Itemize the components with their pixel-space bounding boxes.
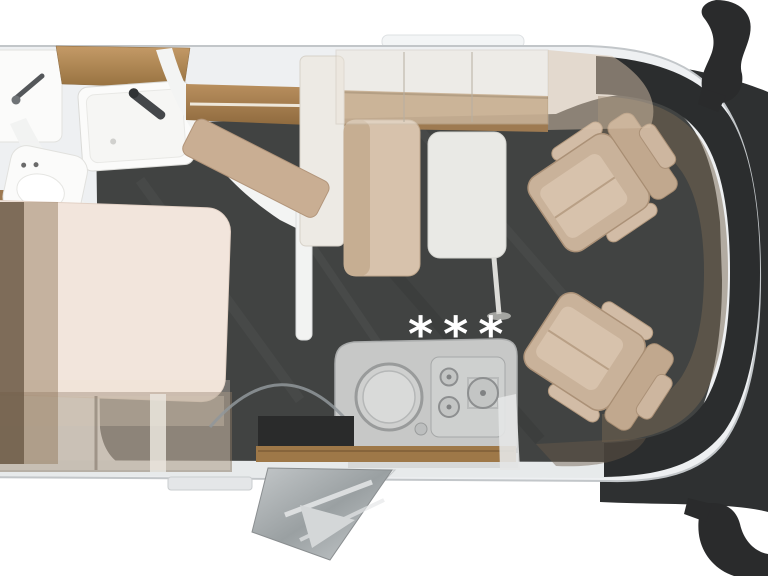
wardrobe-side-light	[24, 202, 58, 464]
overhead-lockers	[336, 50, 548, 124]
wardrobe-side-dark	[0, 202, 24, 464]
table	[428, 132, 506, 258]
kitchen-faucet-base	[415, 423, 427, 435]
washbasin-drain	[12, 96, 21, 105]
wood-threshold	[256, 446, 516, 462]
bench-seat-back	[344, 120, 370, 276]
floorplan-render: ***	[0, 0, 768, 576]
side-skirt-step	[168, 477, 252, 490]
hob-burner-large-center	[480, 390, 486, 396]
hob-burner-small-2-center	[447, 405, 452, 410]
hob-burner-small-1-center	[447, 375, 452, 380]
floorplan-canvas: ***	[0, 0, 768, 576]
kitchen-sink-bowl	[363, 371, 415, 423]
side-mirror-bottom	[698, 503, 768, 576]
hob-burner-symbols: ***	[408, 307, 513, 363]
